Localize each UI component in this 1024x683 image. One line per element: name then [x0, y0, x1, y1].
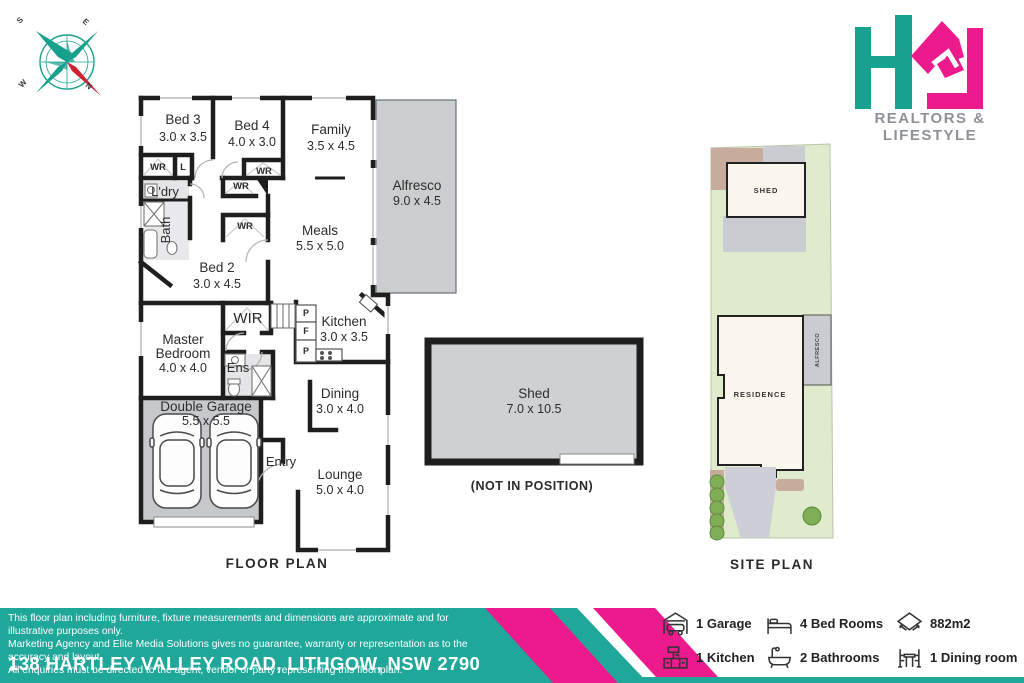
dining-icon — [896, 645, 923, 670]
label-fridge: F — [303, 326, 309, 336]
site-shed-apron — [723, 216, 806, 252]
site-alfresco-label: ALFRESCO — [815, 333, 821, 367]
site-concrete-top — [763, 146, 805, 163]
room-dims-kitchen: 3.0 x 3.5 — [320, 330, 368, 344]
room-label-garage: Double Garage — [160, 399, 252, 414]
room-label-master-2: Bedroom — [156, 346, 211, 361]
shed-label: Shed — [518, 386, 550, 401]
summary-garage: 1 Garage — [662, 611, 766, 636]
garage-door — [154, 517, 254, 527]
room-dims-master: 4.0 x 4.0 — [159, 361, 207, 375]
label-wr-bed2: WR — [237, 221, 253, 232]
compass-point-e: E — [81, 17, 91, 28]
shed-plan: Shed 7.0 x 10.5 (NOT IN POSITION) — [428, 341, 640, 493]
room-dims-family: 3.5 x 4.5 — [307, 139, 355, 153]
brand-tagline: REALTORS & LIFESTYLE — [830, 110, 1024, 144]
site-porch — [776, 479, 804, 491]
site-plan-title: SITE PLAN — [730, 557, 814, 572]
room-label-laundry: L'dry — [151, 184, 179, 199]
room-label-bed2: Bed 2 — [199, 260, 234, 275]
summary-area-label: 882m2 — [930, 616, 970, 631]
site-plan: SHED RESIDENCE ALFRESCO SITE PLAN — [710, 144, 833, 572]
shed-note: (NOT IN POSITION) — [471, 479, 593, 493]
summary-bedrooms: 4 Bed Rooms — [766, 611, 896, 636]
summary-kitchen-label: 1 Kitchen — [696, 650, 755, 665]
compass-rose: S E W N — [15, 15, 101, 96]
room-label-kitchen: Kitchen — [321, 314, 366, 329]
room-label-bed4: Bed 4 — [234, 118, 270, 133]
summary-kitchen: 1 Kitchen — [662, 645, 766, 670]
label-linen: L — [180, 162, 186, 173]
room-dims-garage: 5.5 x 5.5 — [182, 414, 230, 428]
room-dims-lounge: 5.0 x 4.0 — [316, 483, 364, 497]
site-shed-label: SHED — [754, 186, 779, 195]
label-wr-hall: WR — [233, 181, 249, 192]
room-dims-dining: 3.0 x 4.0 — [316, 402, 364, 416]
compass-point-s: S — [15, 15, 26, 26]
room-label-master-1: Master — [162, 332, 204, 347]
label-pantry-2: P — [303, 346, 309, 356]
property-summary: 1 Garage 4 Bed Rooms 882m2 — [662, 606, 1022, 676]
room-label-bed3: Bed 3 — [165, 112, 200, 127]
summary-bathrooms: 2 Bathrooms — [766, 645, 896, 670]
bathtub-icon — [766, 645, 793, 670]
room-label-wir: WIR — [233, 310, 262, 327]
linen-cupboard — [271, 304, 295, 328]
car — [207, 414, 261, 508]
garage-icon — [662, 611, 689, 636]
room-label-entry: Entry — [266, 454, 297, 469]
shed-dims: 7.0 x 10.5 — [507, 402, 562, 416]
room-dims-bed4: 4.0 x 3.0 — [228, 135, 276, 149]
floorplan-page: S E W N — [0, 0, 1024, 683]
room-dims-bed3: 3.0 x 3.5 — [159, 130, 207, 144]
floor-plan: Bed 3 3.0 x 3.5 Bed 4 4.0 x 3.0 Family 3… — [138, 95, 457, 572]
room-dims-bed2: 3.0 x 4.5 — [193, 277, 241, 291]
summary-dining-label: 1 Dining room — [930, 650, 1017, 665]
summary-area: 882m2 — [896, 611, 1018, 636]
room-label-alfresco: Alfresco — [393, 178, 442, 193]
car — [150, 414, 204, 508]
property-address: 138 HARTLEY VALLEY ROAD, LITHGOW, NSW 27… — [8, 653, 608, 675]
site-residence-label: RESIDENCE — [734, 390, 787, 399]
room-label-ens: Ens — [227, 360, 250, 375]
summary-dining: 1 Dining room — [896, 645, 1018, 670]
label-pantry-1: P — [303, 308, 309, 318]
compass-point-w: W — [17, 77, 29, 89]
summary-garage-label: 1 Garage — [696, 616, 752, 631]
room-label-meals: Meals — [302, 223, 338, 238]
kitchen-icon — [662, 645, 689, 670]
label-wr-bed4: WR — [256, 166, 272, 177]
room-label-dining: Dining — [321, 386, 359, 401]
room-label-lounge: Lounge — [317, 467, 362, 482]
area-icon — [896, 611, 923, 636]
summary-bathrooms-label: 2 Bathrooms — [800, 650, 879, 665]
room-label-bath: Bath — [158, 217, 173, 244]
floor-plan-title: FLOOR PLAN — [226, 556, 329, 571]
room-label-family: Family — [311, 122, 351, 137]
compass-needle — [67, 62, 101, 96]
disclaimer-line-1: This floor plan including furniture, fix… — [8, 612, 483, 638]
label-wr-bed3: WR — [150, 162, 166, 173]
summary-bedrooms-label: 4 Bed Rooms — [800, 616, 883, 631]
room-dims-alfresco: 9.0 x 4.5 — [393, 194, 441, 208]
bed-icon — [766, 611, 793, 636]
room-dims-meals: 5.5 x 5.0 — [296, 239, 344, 253]
